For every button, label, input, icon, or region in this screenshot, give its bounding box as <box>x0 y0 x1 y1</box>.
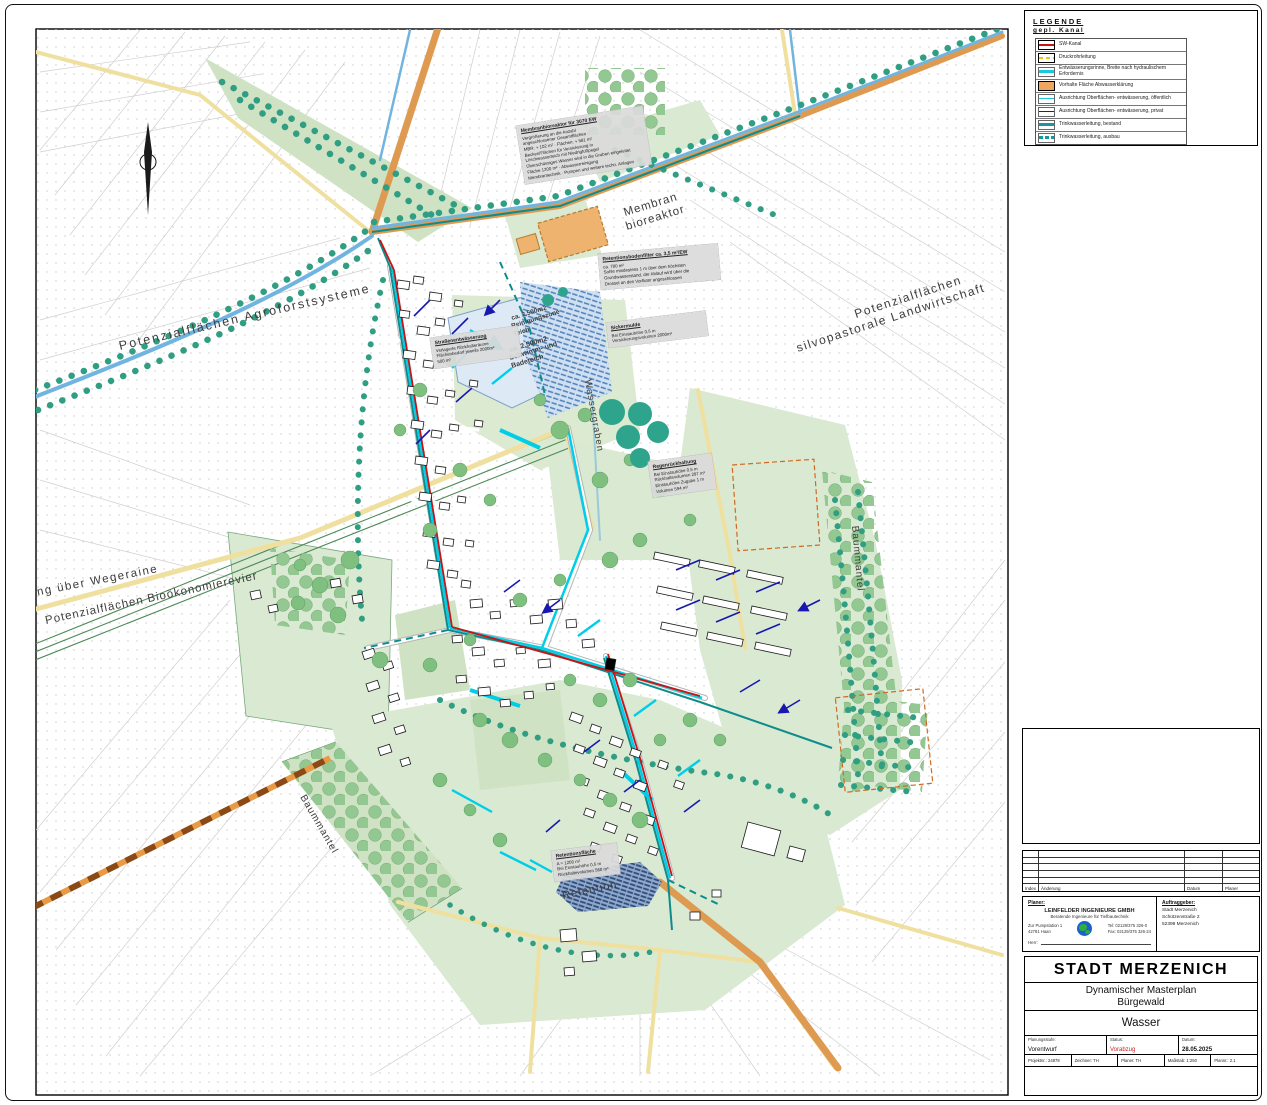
legend-subtitle: gepl. Kanal <box>1033 27 1249 34</box>
client-cell: Auftraggeber: Stadt Merzenich Schützenst… <box>1157 897 1259 951</box>
field-datum: Datum: 28.05.2025 <box>1179 1036 1257 1054</box>
contact-fill-line <box>1041 939 1151 945</box>
field-planer: Planer: TH <box>1118 1055 1165 1066</box>
legend-title: LEGENDE <box>1033 17 1249 26</box>
planner-address: Zur Pumpstation 1 42781 Haan <box>1028 923 1062 935</box>
notes-box <box>1022 728 1260 844</box>
title-block: STADT MERZENICH Dynamischer Masterplan B… <box>1024 956 1258 1096</box>
legend-row-oberflaeche-privat: Ausrichtung Oberflächen- entwässerung, p… <box>1036 106 1186 119</box>
planner-cell: Planer: LEINFELDER INGENIEURE GMBH Berat… <box>1023 897 1157 951</box>
plan-sheet: Potenzialflächen Agroforstsysteme Potenz… <box>0 0 1267 1105</box>
client-name: Stadt Merzenich <box>1162 908 1254 913</box>
field-zeichner: Zeichner: TH <box>1072 1055 1119 1066</box>
company-logo <box>1077 921 1092 936</box>
trinkwasser-ausbau-symbol <box>1038 133 1055 143</box>
legend-row-vorhalteflaeche: Vorhalte Fläche Abwasserklärung <box>1036 80 1186 93</box>
title-sheet: Wasser <box>1025 1011 1257 1036</box>
field-projektnr: Projektnr.: 24878 <box>1025 1055 1072 1066</box>
legend-row-entwaesserungsrinne: Entwässerungsrinne, Breite nach hydrauli… <box>1036 65 1186 80</box>
field-plannr: Plannr.: 2.1 <box>1211 1055 1257 1066</box>
title-meta-row: Projektnr.: 24878 Zeichner: TH Planer: T… <box>1025 1055 1257 1067</box>
planner-phone: Tel: 02129/375 326-0 Fax: 02129/375 326-… <box>1108 923 1151 935</box>
legend-row-trinkwasser-ausbau: Trinkwasserleitung, ausbau <box>1036 132 1186 144</box>
title-project: Dynamischer Masterplan Bürgewald <box>1025 983 1257 1011</box>
title-status-row: Planungsstufe: Vorentwurf Status: Vorabz… <box>1025 1036 1257 1055</box>
entwaesserungsrinne-symbol <box>1038 67 1055 77</box>
client-city: 52399 Merzenich <box>1162 922 1254 927</box>
legend-table: SW-Kanal Druckrohrleitung Entwässerungsr… <box>1035 38 1187 145</box>
trinkwasser-bestand-symbol <box>1038 120 1055 130</box>
revision-col-index: Index <box>1023 884 1039 891</box>
legend-box: LEGENDE gepl. Kanal SW-Kanal Druckrohrle… <box>1024 10 1258 146</box>
sw-kanal-symbol <box>1038 40 1055 50</box>
legend-row-sw-kanal: SW-Kanal <box>1036 39 1186 52</box>
title-city: STADT MERZENICH <box>1025 957 1257 983</box>
title-empty-row <box>1025 1067 1257 1095</box>
field-massstab: Maßstab: 1:250 <box>1165 1055 1212 1066</box>
legend-row-druckrohrleitung: Druckrohrleitung <box>1036 52 1186 65</box>
legend-row-trinkwasser-bestand: Trinkwasserleitung, bestand <box>1036 119 1186 132</box>
legend-row-oberflaeche-oeffentlich: Ausrichtung Oberflächen- entwässerung, ö… <box>1036 93 1186 106</box>
planner-label: Planer: <box>1028 900 1151 906</box>
status-value: Vorabzug <box>1110 1047 1175 1053</box>
revision-col-date: Datum <box>1185 884 1223 891</box>
druckrohrleitung-symbol <box>1038 53 1055 63</box>
oberflaeche-privat-symbol <box>1038 107 1055 117</box>
field-status: Status: Vorabzug <box>1107 1036 1179 1054</box>
oberflaeche-oeffentlich-symbol <box>1038 94 1055 104</box>
planner-tagline: Beratende Ingenieure für Tiefbautechnik <box>1028 914 1151 919</box>
revision-table: Index Änderung Datum Planer <box>1022 850 1260 892</box>
revision-col-change: Änderung <box>1039 884 1185 891</box>
revision-col-planner: Planer <box>1223 884 1259 891</box>
client-street: Schützenstraße 2 <box>1162 915 1254 920</box>
planner-contact-label: Herr: <box>1028 940 1038 945</box>
vorhalteflaeche-symbol <box>1038 81 1055 91</box>
planner-client-box: Planer: LEINFELDER INGENIEURE GMBH Berat… <box>1022 896 1260 952</box>
client-label: Auftraggeber: <box>1162 900 1254 906</box>
field-planungsstufe: Planungsstufe: Vorentwurf <box>1025 1036 1107 1054</box>
